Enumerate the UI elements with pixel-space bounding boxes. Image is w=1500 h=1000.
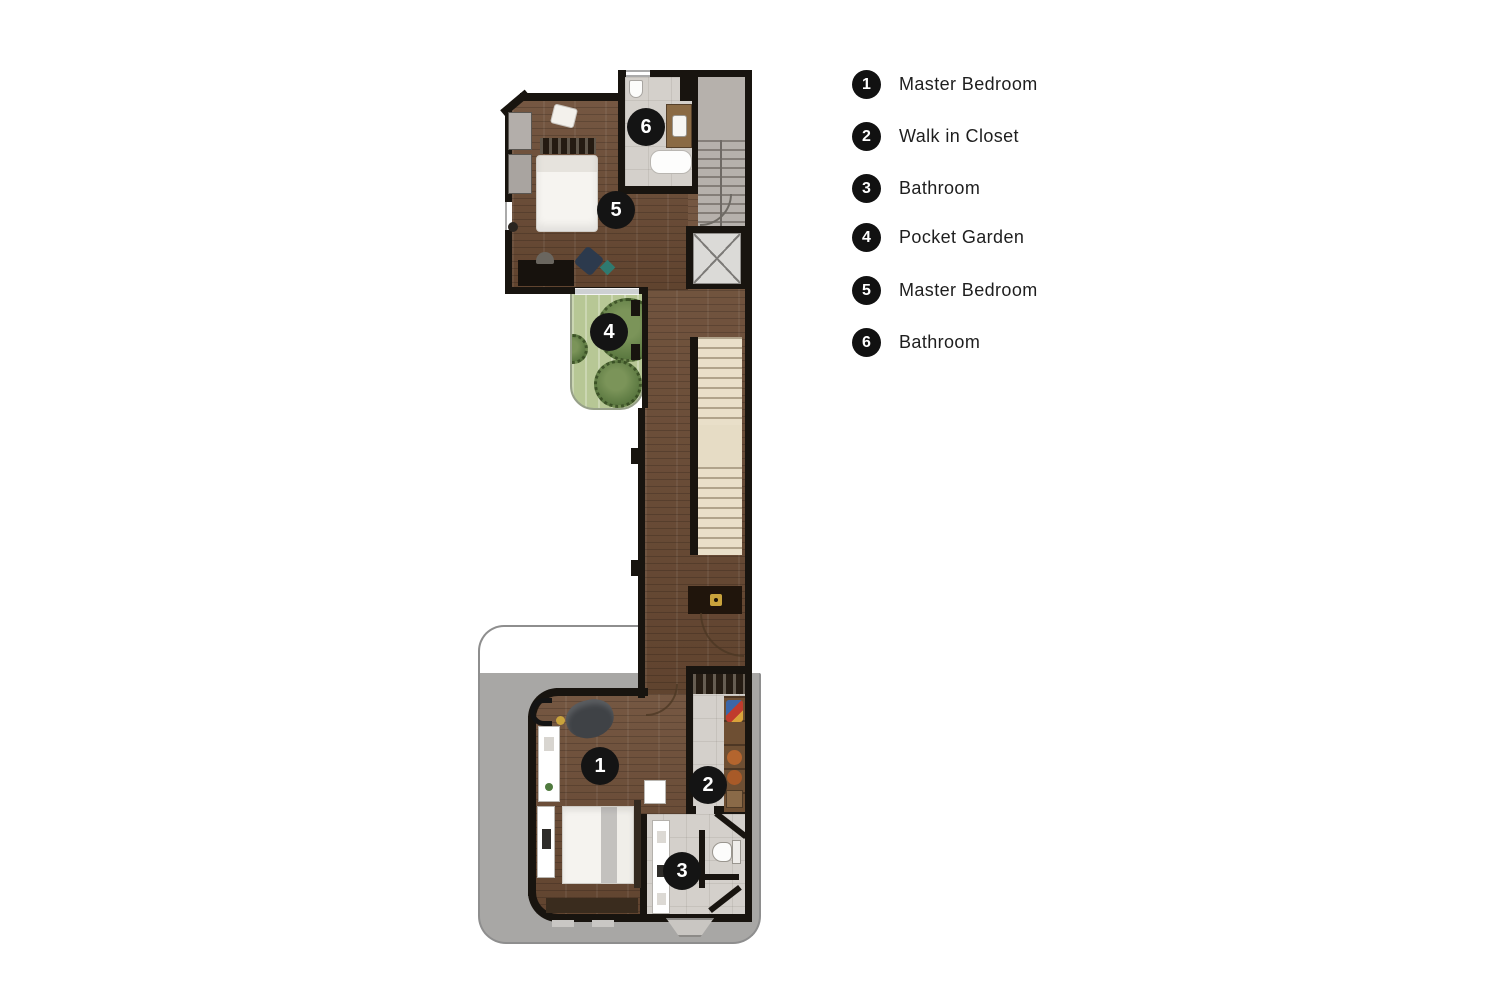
- nightstand: [644, 780, 666, 804]
- window-frame-tab: [631, 344, 640, 360]
- legend-item-2: 2 Walk in Closet: [852, 122, 1019, 151]
- legend-label: Bathroom: [899, 332, 980, 353]
- toilet: [629, 80, 643, 98]
- wall-segment: [692, 70, 698, 190]
- legend-label: Walk in Closet: [899, 126, 1019, 147]
- bed-headboard: [634, 800, 641, 888]
- terrace-door: [530, 698, 552, 726]
- legend-item-3: 3 Bathroom: [852, 174, 980, 203]
- floor-plan: 1 2 3 4 5 6: [0, 0, 1500, 1000]
- outer-right-wall: [745, 70, 752, 922]
- gold-decor-icon: [556, 716, 565, 725]
- wall-segment: [528, 716, 536, 896]
- window-frame-tab: [631, 448, 640, 464]
- door-gap: [696, 806, 714, 814]
- legend-number-badge: 5: [852, 276, 881, 305]
- wall-segment: [556, 688, 648, 696]
- room-marker-5: 5: [597, 191, 635, 229]
- vanity: [666, 104, 692, 148]
- wall-segment: [520, 93, 623, 101]
- interior-stairs-upper: [698, 337, 742, 425]
- bed: [562, 806, 634, 884]
- hall-cabinet: [688, 586, 742, 614]
- wall-segment: [618, 186, 698, 194]
- closet-unit: [508, 154, 532, 194]
- legend-label: Pocket Garden: [899, 227, 1024, 248]
- shower-partition: [701, 874, 739, 880]
- interior-stairs-landing: [698, 425, 742, 467]
- legend-label: Master Bedroom: [899, 280, 1038, 301]
- floor-plan-page: 1 2 3 4 5 6 1 Master Bedroom 2 Walk in C…: [0, 0, 1500, 1000]
- legend-label: Bathroom: [899, 178, 980, 199]
- window-frame-tab: [552, 920, 574, 927]
- room-marker-4: 4: [590, 313, 628, 351]
- wall-segment: [686, 666, 752, 674]
- legend-number-badge: 6: [852, 328, 881, 357]
- window-frame-tab: [631, 560, 640, 576]
- basket-icon: [727, 750, 742, 765]
- legend-label: Master Bedroom: [899, 74, 1038, 95]
- legend-number-badge: 3: [852, 174, 881, 203]
- window-frame-tab: [631, 300, 640, 316]
- basket-icon: [727, 770, 742, 785]
- elevator-cab: [693, 233, 741, 284]
- room-marker-3: 3: [663, 852, 701, 890]
- window-glass: [575, 288, 639, 295]
- drawer-box: [726, 790, 743, 808]
- interior-stairs-lower: [698, 467, 742, 555]
- wall-segment: [556, 914, 752, 922]
- stair-stringer: [690, 337, 698, 555]
- wardrobe-rail: [693, 674, 745, 694]
- legend: 1 Master Bedroom 2 Walk in Closet 3 Bath…: [852, 0, 1172, 400]
- room-marker-1: 1: [581, 747, 619, 785]
- window-frame-tab: [592, 920, 614, 927]
- desk-chair: [536, 252, 554, 264]
- legend-item-5: 5 Master Bedroom: [852, 276, 1038, 305]
- legend-item-6: 6 Bathroom: [852, 328, 980, 357]
- terrace-ledge: [478, 625, 645, 679]
- wall-segment: [642, 292, 648, 408]
- legend-number-badge: 2: [852, 122, 881, 151]
- clothes-rail: [540, 138, 596, 154]
- window-gap: [626, 70, 650, 77]
- room-marker-6: 6: [627, 108, 665, 146]
- dresser: [537, 806, 555, 878]
- tree-icon: [594, 360, 642, 408]
- bed: [536, 155, 598, 232]
- low-shelf: [546, 898, 638, 913]
- wall-segment: [618, 77, 625, 192]
- gold-emblem-icon: [710, 594, 722, 606]
- closet-unit: [508, 112, 532, 150]
- room-marker-2: 2: [689, 766, 727, 804]
- knob-icon: [508, 222, 518, 232]
- legend-item-4: 4 Pocket Garden: [852, 223, 1024, 252]
- sink: [672, 115, 687, 137]
- legend-number-badge: 4: [852, 223, 881, 252]
- toilet: [712, 842, 732, 862]
- legend-item-1: 1 Master Bedroom: [852, 70, 1038, 99]
- tree-icon: [570, 334, 588, 364]
- legend-number-badge: 1: [852, 70, 881, 99]
- shelving-unit: [724, 696, 745, 812]
- bathtub: [650, 150, 692, 174]
- toilet-tank: [732, 840, 741, 864]
- wall-segment: [640, 814, 647, 918]
- elevator: [686, 226, 746, 289]
- bag-icon: [726, 700, 743, 722]
- desk: [538, 726, 560, 802]
